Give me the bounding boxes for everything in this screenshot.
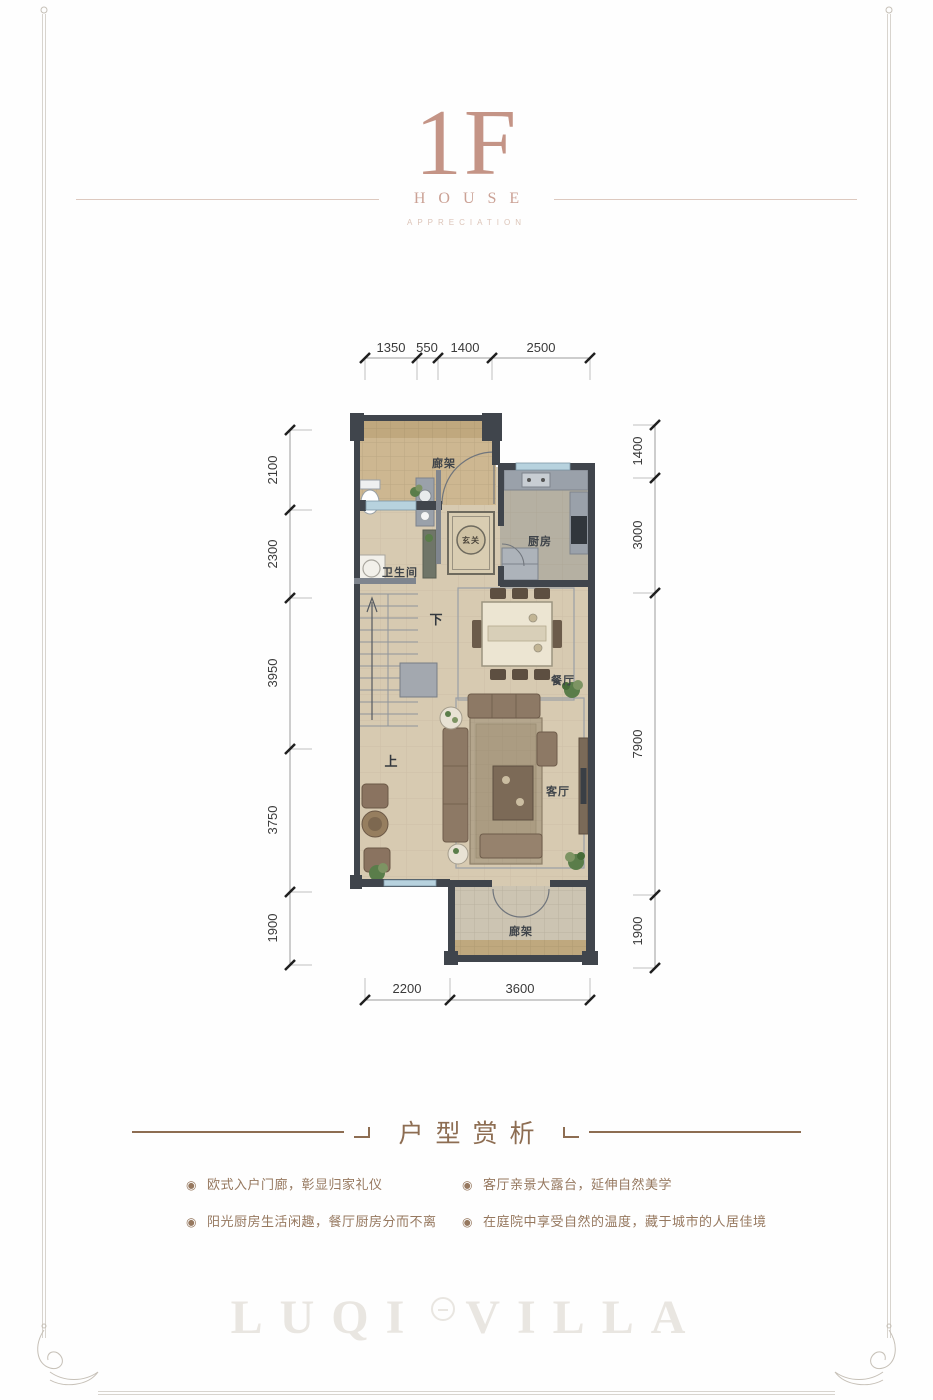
dim-bottom-1: 2200 (393, 981, 422, 996)
dim-strip-top: 1350 550 1400 2500 (360, 340, 595, 380)
bullet-text: 在庭院中享受自然的温度，藏于城市的人居佳境 (483, 1213, 767, 1231)
coffee-table (493, 766, 533, 820)
brand-watermark: LUQIVILLA (0, 1290, 933, 1345)
dim-top-1: 1350 (377, 340, 406, 355)
analysis-bullet: ◉ 客厅亲景大露台，延伸自然美学 (462, 1176, 771, 1194)
bench-seat (480, 834, 542, 858)
flower-table-2 (448, 844, 468, 864)
analysis-bullet: ◉ 阳光厨房生活闲趣，餐厅厨房分而不离 (186, 1213, 448, 1231)
analysis-bullets: ◉ 欧式入户门廊，彰显归家礼仪 ◉ 客厅亲景大露台，延伸自然美学 ◉ 阳光厨房生… (186, 1176, 771, 1231)
header-line-left (76, 199, 379, 200)
sofa-back (468, 694, 540, 718)
label-bathroom: 卫生间 (382, 565, 418, 579)
dim-left-1: 2100 (265, 456, 280, 485)
bracket-ornament-left (354, 1127, 370, 1138)
label-stair-down: 下 (429, 612, 442, 627)
floorplan-drawing: 玄关 (250, 330, 710, 1015)
dim-left-4: 3750 (265, 806, 280, 835)
sofa-left (443, 728, 468, 842)
dim-top-2: 550 (416, 340, 438, 355)
window-icon (366, 501, 416, 510)
foyer-rug: 玄关 (448, 512, 494, 574)
dim-strip-bottom: 2200 3600 (360, 978, 595, 1005)
analysis-bullet: ◉ 在庭院中享受自然的温度，藏于城市的人居佳境 (462, 1213, 771, 1231)
dim-left-5: 1900 (265, 914, 280, 943)
dim-right-3: 7900 (630, 730, 645, 759)
dim-strip-right: 1400 3000 7900 1900 (630, 420, 660, 973)
dim-right-1: 1400 (630, 437, 645, 466)
dim-top-4: 2500 (527, 340, 556, 355)
basin-icon (419, 490, 431, 502)
bullet-icon: ◉ (462, 1176, 473, 1194)
armchair (537, 732, 557, 766)
stair-landing (400, 663, 437, 697)
bullet-text: 阳光厨房生活闲趣，餐厅厨房分而不离 (207, 1213, 437, 1231)
floor-title: 1F (0, 96, 933, 190)
label-stair-up: 上 (384, 754, 397, 769)
brand-right: VILLA (465, 1291, 702, 1344)
dim-strip-left: 2100 2300 3950 3750 1900 (265, 425, 312, 970)
label-living: 客厅 (545, 784, 570, 798)
bracket-ornament-right (563, 1127, 579, 1138)
analysis-line-right (589, 1131, 801, 1133)
label-kitchen: 厨房 (528, 534, 552, 548)
patio-chairs (362, 784, 390, 872)
bullet-text: 客厅亲景大露台，延伸自然美学 (483, 1176, 672, 1194)
floor-fills (356, 416, 595, 960)
analysis-line-left (132, 1131, 344, 1133)
header-subtitle: HOUSE (401, 190, 532, 208)
header-subtitle-row: HOUSE (0, 190, 933, 208)
window-icon (516, 463, 570, 470)
dim-bottom-2: 3600 (506, 981, 535, 996)
label-pergola-bottom: 廊架 (509, 924, 533, 938)
analysis-header: 户型赏析 (0, 1114, 933, 1150)
dim-right-4: 1900 (630, 917, 645, 946)
label-pergola-top: 廊架 (432, 456, 456, 470)
bullet-icon: ◉ (462, 1213, 473, 1231)
window-icon (384, 880, 436, 886)
dim-right-2: 3000 (630, 521, 645, 550)
washer-icon (358, 555, 385, 582)
header-tagline: APPRECIATION (0, 218, 933, 227)
bullet-text: 欧式入户门廊，彰显归家礼仪 (207, 1176, 383, 1194)
sink-icon (522, 473, 550, 487)
flower-table (440, 707, 462, 729)
header-line-right (554, 199, 857, 200)
brand-emblem-icon (431, 1297, 455, 1321)
oven-icon (571, 516, 587, 544)
dining-set (472, 588, 562, 680)
floorplan: 玄关 (250, 330, 710, 1015)
dim-left-3: 3950 (265, 659, 280, 688)
bullet-icon: ◉ (186, 1213, 197, 1231)
brand-left: LUQI (231, 1291, 422, 1344)
tv-icon (581, 768, 587, 804)
foyer-rug-label: 玄关 (462, 535, 480, 545)
analysis-bullet: ◉ 欧式入户门廊，彰显归家礼仪 (186, 1176, 448, 1194)
bullet-icon: ◉ (186, 1176, 197, 1194)
label-dining: 餐厅 (550, 673, 575, 687)
dim-top-3: 1400 (451, 340, 480, 355)
brochure-page: 1F HOUSE APPRECIATION (0, 0, 933, 1400)
analysis-heading: 户型赏析 (386, 1114, 546, 1150)
dim-left-2: 2300 (265, 540, 280, 569)
toilet-tank (360, 480, 380, 489)
